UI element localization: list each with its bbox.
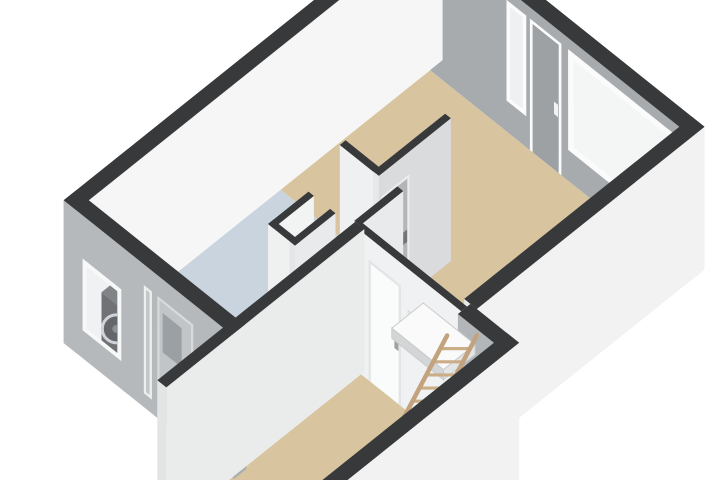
ext-wall-west-bedroom-end xyxy=(157,380,166,480)
floorplan-3d-view xyxy=(0,0,720,480)
floorplan-canvas xyxy=(0,0,720,480)
window-sidelight-glass xyxy=(146,290,150,395)
balcony-door-glass xyxy=(533,24,559,173)
window-small-left-glass xyxy=(510,7,523,109)
